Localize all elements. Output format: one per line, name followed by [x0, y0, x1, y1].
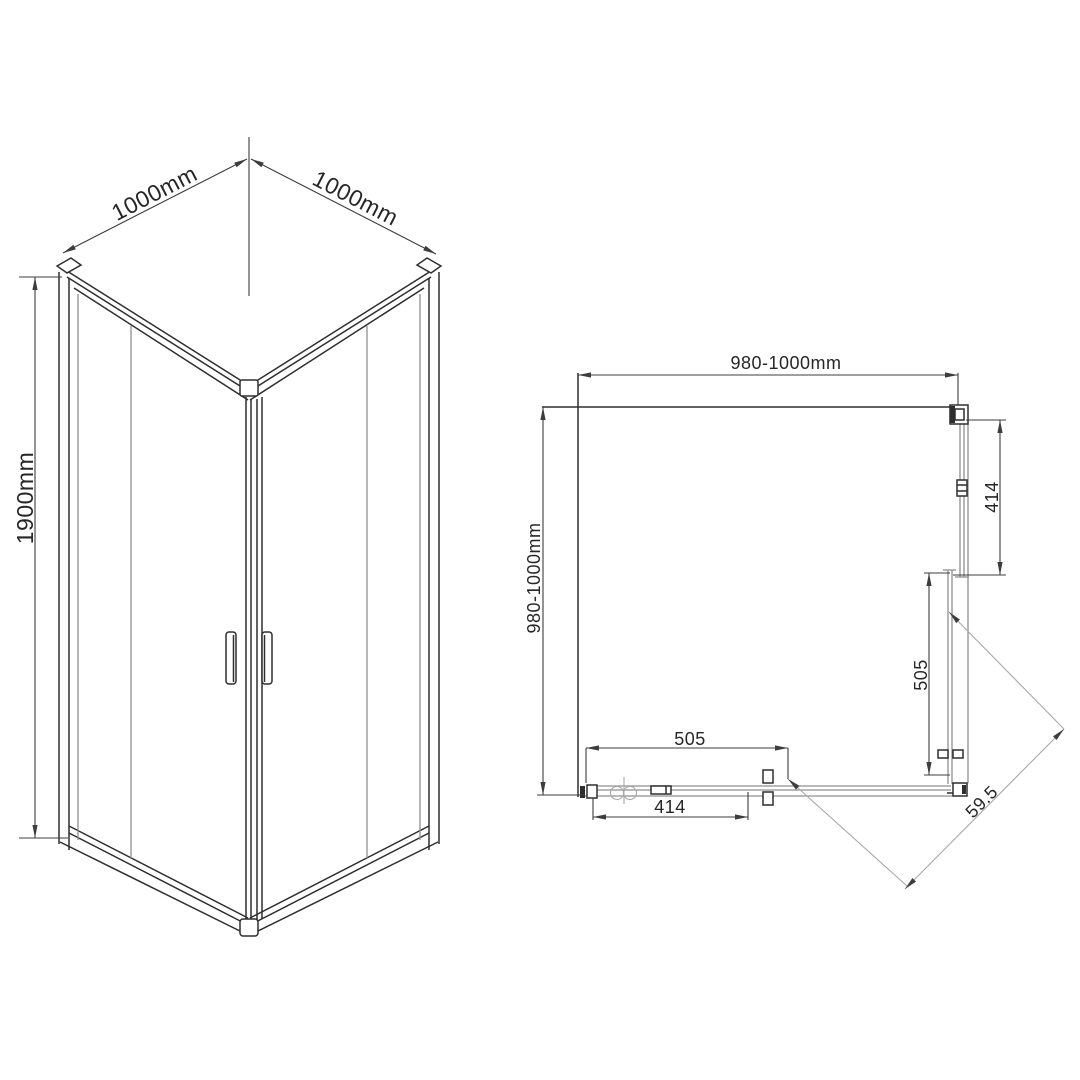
technical-drawing: 1000mm 1000mm 1900mm [0, 0, 1080, 1080]
plan-door-latch [651, 786, 671, 794]
plan-bottom-left-wall-bracket [580, 785, 597, 798]
iso-right-door-handle [262, 632, 272, 684]
plan-right-panel-clip [957, 480, 967, 496]
iso-left-door-handle [226, 632, 236, 684]
iso-dim-height-label: 1900mm [12, 452, 38, 544]
plan-dim-bottom-outer-label: 414 [654, 797, 686, 817]
plan-dim-top-label: 980-1000mm [730, 353, 841, 373]
plan-dim-right-outer-label: 414 [982, 481, 1002, 513]
plan-dim-bottom-inner-label: 505 [674, 729, 706, 749]
drawing-page: 1000mm 1000mm 1900mm [0, 0, 1080, 1080]
plan-dim-right-inner-label: 505 [911, 659, 931, 691]
iso-corner-bottom-cap [240, 919, 258, 936]
plan-dim-left-label: 980-1000mm [524, 522, 544, 633]
plan-top-right-wall-bracket [950, 405, 968, 424]
iso-corner-top-cap [240, 380, 258, 396]
